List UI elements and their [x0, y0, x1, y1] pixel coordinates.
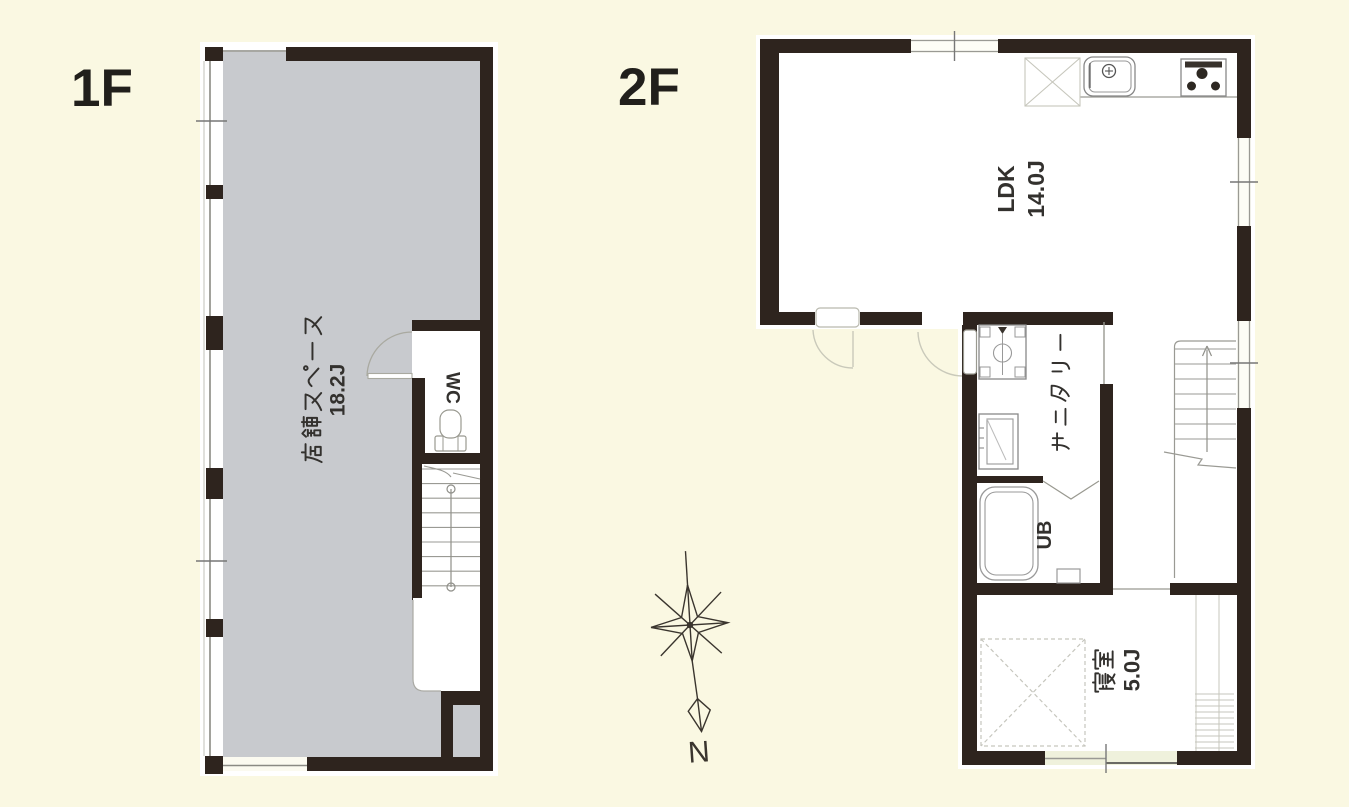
svg-text:1F: 1F	[71, 59, 133, 118]
svg-text:5.0J: 5.0J	[1120, 649, 1145, 692]
svg-text:WC: WC	[442, 372, 463, 404]
svg-text:UB: UB	[1034, 521, 1056, 550]
svg-text:N: N	[687, 735, 711, 769]
svg-text:18.2J: 18.2J	[327, 364, 350, 417]
svg-text:14.0J: 14.0J	[1023, 160, 1049, 218]
svg-text:2F: 2F	[618, 58, 680, 117]
svg-text:LDK: LDK	[993, 165, 1019, 213]
